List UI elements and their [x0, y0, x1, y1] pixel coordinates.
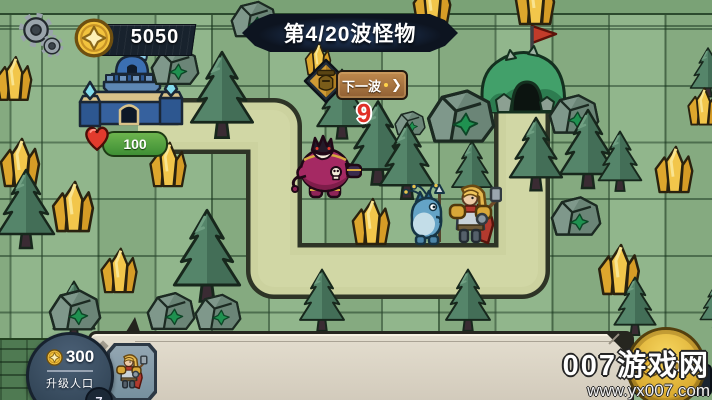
gold-crystal-icon: [350, 194, 392, 248]
population-divider: [47, 370, 93, 372]
wave-banner: 第4/20波怪物: [242, 14, 458, 52]
coin-icon: [74, 18, 114, 58]
pine-tree-icon: [698, 276, 712, 336]
enemy-brute: [288, 134, 362, 200]
wave-title: 第4/20波怪物: [242, 14, 458, 52]
gold-crystal-icon: [512, 0, 558, 26]
buy-gold-price: 100: [663, 357, 691, 377]
gold-crystal-icon: [50, 176, 96, 236]
pine-tree-icon: [296, 268, 348, 334]
hero-knight[interactable]: [444, 183, 502, 247]
gold-amount: 5050: [120, 26, 190, 49]
next-wave-label: 下一波: [342, 76, 381, 95]
coin-icon: [641, 357, 661, 377]
rock-icon: [194, 288, 242, 336]
buy-gold-button[interactable]: 100: [626, 327, 706, 400]
rock-icon: [146, 286, 196, 336]
gold-crystal-icon: [686, 84, 712, 128]
pine-tree-icon: [506, 116, 566, 194]
gear-small-icon: [40, 34, 64, 58]
game-screen: 5050 第4/20波怪物 下一波 ❯ 9 100 300: [0, 0, 712, 400]
unit-panel: [88, 331, 634, 400]
panel-divider: [135, 341, 617, 342]
settings-button[interactable]: [18, 12, 70, 62]
wave-countdown: 9: [349, 98, 379, 129]
bullet-dot-icon: [384, 83, 388, 87]
castle-hp-badge: 100: [82, 124, 164, 156]
heart-icon: [82, 124, 112, 153]
gold-crystal-icon: [652, 144, 696, 194]
panel-pointer-notch: [126, 317, 140, 332]
population-cost: 300: [66, 347, 94, 367]
rock-icon: [550, 186, 602, 246]
pine-tree-icon: [590, 130, 650, 194]
map-top-edge: [0, 0, 712, 15]
gold-counter: 5050: [74, 18, 194, 58]
pine-tree-icon: [442, 268, 494, 334]
pine-tree-icon: [186, 50, 258, 142]
coin-icon: [46, 349, 63, 366]
chevron-right-icon: ❯: [391, 77, 402, 93]
hero-card-knight[interactable]: [107, 343, 157, 400]
hero-card-portrait: [110, 347, 154, 397]
next-wave-button[interactable]: 下一波 ❯: [336, 70, 408, 100]
rock-icon: [48, 284, 102, 336]
